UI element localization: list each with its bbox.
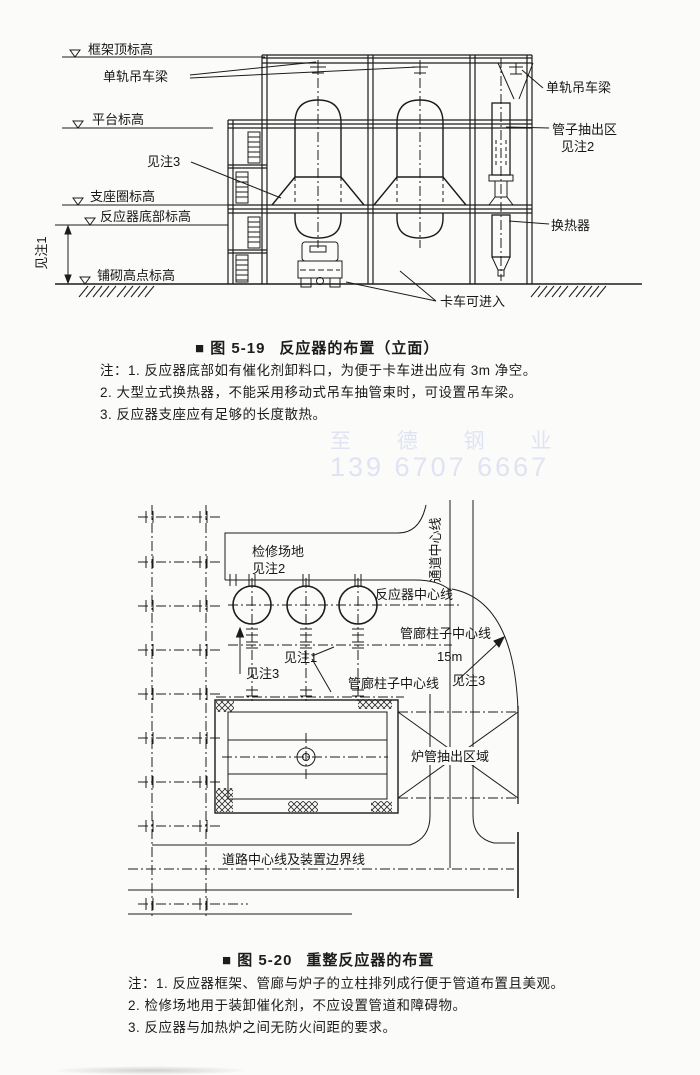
monorail-beam-symbols	[310, 63, 533, 99]
label-maintenance-area: 检修场地	[252, 544, 304, 559]
label-see-note3-right: 见注3	[452, 673, 485, 688]
watermark-company: 至 德 钢 业	[330, 431, 572, 452]
label-monorail-beam-left: 单轨吊车梁	[103, 69, 168, 84]
label-passage-centerline: 通道中心线	[428, 517, 443, 582]
label-platform-elevation: 平台标高	[92, 112, 144, 127]
scanned-page: { "page": { "background": "#fbfbf9", "in…	[0, 0, 700, 1075]
note-line: 注：1. 反应器框架、管廊与炉子的立柱排列成行便于管道布置且美观。	[128, 973, 565, 995]
label-15m-dimension: 15m	[437, 649, 462, 664]
ladders	[236, 132, 260, 282]
figure-5-20-notes: 注：1. 反应器框架、管廊与炉子的立柱排列成行便于管道布置且美观。 2. 检修场…	[128, 973, 565, 1039]
note-line: 2. 大型立式换热器，不能采用移动式吊车抽管束时，可设置吊车梁。	[100, 382, 537, 404]
grid-tick-marks	[146, 511, 207, 910]
label-see-note1: 见注1	[34, 236, 49, 269]
label-heat-exchanger: 换热器	[551, 218, 590, 233]
label-pipe-rack-centerline-upper: 管廊柱子中心线	[400, 626, 491, 641]
dimension-see-note1	[65, 226, 71, 283]
figure-5-19-notes: 注：1. 反应器底部如有催化剂卸料口，为便于卡车进出应有 3m 净空。 2. 大…	[100, 360, 537, 426]
steel-frame	[228, 55, 532, 284]
furnace-corner-pads	[216, 699, 392, 812]
label-furnace-tube-area: 炉管抽出区域	[411, 749, 489, 764]
label-reactor-bottom-elevation: 反应器底部标高	[100, 209, 191, 224]
label-tube-pull-see-note2: 见注2	[561, 139, 594, 154]
label-reactor-centerline: 反应器中心线	[375, 587, 453, 602]
figure-5-20-number: ■ 图 5-20	[222, 952, 292, 969]
label-monorail-beam-right: 单轨吊车梁	[546, 80, 611, 95]
label-pipe-rack-centerline-lower: 管廊柱子中心线	[348, 676, 439, 691]
figure-5-19-title: 反应器的布置（立面）	[279, 340, 439, 357]
figure-5-19-caption: ■ 图 5-19反应器的布置（立面）	[195, 337, 439, 358]
note-line: 3. 反应器支座应有足够的长度散热。	[100, 404, 537, 426]
heat-exchanger-vessel	[489, 58, 513, 281]
figure-5-19-elevation-drawing: 框架顶标高 单轨吊车梁 平台标高 见注3 支座圈标高 反应器底部标高 见注1 铺…	[30, 28, 690, 320]
figure-5-20-title: 重整反应器的布置	[306, 952, 434, 969]
note-line: 2. 检修场地用于装卸催化剂，不应设置管道和障碍物。	[128, 995, 565, 1017]
figure-5-20-caption: ■ 图 5-20重整反应器的布置	[222, 949, 434, 970]
label-see-note1: 见注1	[284, 650, 317, 665]
label-truck-access: 卡车可进入	[440, 294, 505, 309]
scan-smudge	[50, 1066, 250, 1075]
label-frame-top-elevation: 框架顶标高	[88, 42, 153, 57]
label-maintenance-see-note2: 见注2	[252, 561, 285, 576]
figure-5-20-plan-drawing: 检修场地 见注2 通道中心线 反应器中心线 管廊柱子中心线 15m 见注3 管廊…	[120, 495, 695, 940]
road-lines	[128, 832, 518, 914]
ground-hatching	[79, 286, 606, 297]
reactor-column-centerlines	[252, 578, 358, 704]
note-line: 3. 反应器与加热炉之间无防火间距的要求。	[128, 1017, 565, 1039]
watermark: 至 德 钢 业 139 6707 6667	[330, 431, 572, 481]
figure-5-19-number: ■ 图 5-19	[195, 340, 265, 357]
label-see-note3-left: 见注3	[246, 666, 279, 681]
label-see-note3: 见注3	[147, 154, 180, 169]
label-road-centerline: 道路中心线及装置边界线	[222, 852, 365, 867]
note-line: 注：1. 反应器底部如有催化剂卸料口，为便于卡车进出应有 3m 净空。	[100, 360, 537, 382]
label-support-ring-elevation: 支座圈标高	[90, 189, 155, 204]
furnace	[215, 699, 398, 813]
label-paving-high-elevation: 铺砌高点标高	[97, 268, 175, 283]
watermark-phone: 139 6707 6667	[330, 454, 572, 481]
dimension-see-note3-left	[237, 628, 244, 674]
truck	[298, 242, 342, 287]
label-tube-pull-area: 管子抽出区	[552, 122, 617, 137]
